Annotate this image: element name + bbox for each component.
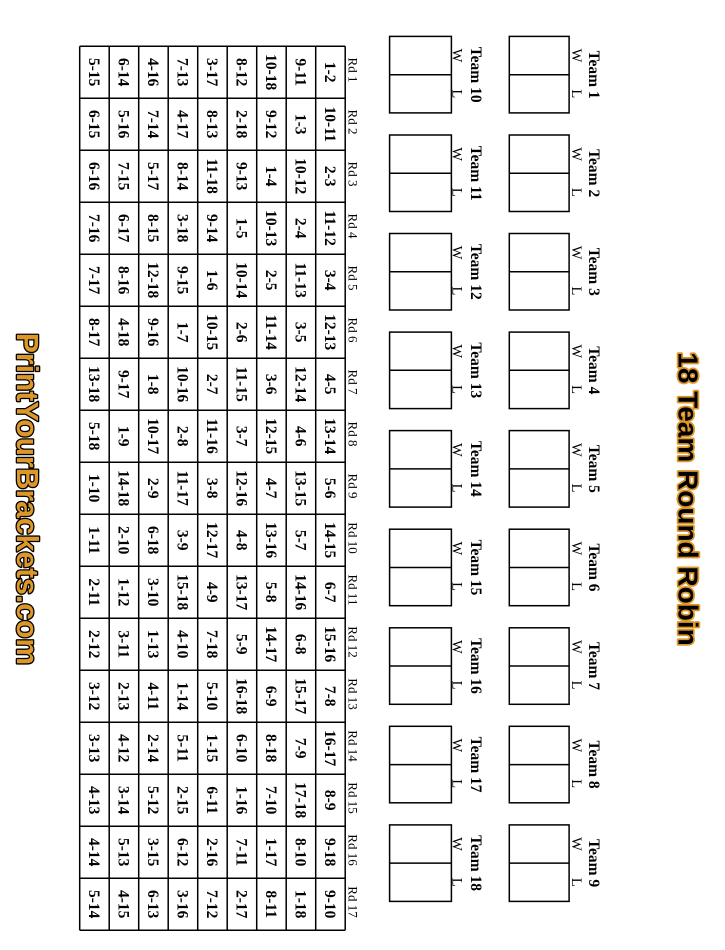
svg-text:6-15: 6-15 (85, 110, 102, 139)
svg-text:8-9: 8-9 (321, 790, 338, 811)
svg-text:9-16: 9-16 (144, 318, 161, 347)
svg-text:W: W (568, 246, 584, 260)
svg-text:Team 1: Team 1 (585, 51, 602, 99)
svg-text:Team 18: Team 18 (467, 835, 484, 891)
svg-text:L: L (568, 484, 584, 493)
svg-text:Rd 17: Rd 17 (346, 886, 361, 918)
svg-text:Team 10: Team 10 (467, 47, 484, 103)
svg-text:3-8: 3-8 (203, 478, 220, 499)
svg-text:W: W (568, 640, 584, 654)
svg-text:Rd 14: Rd 14 (346, 730, 361, 762)
svg-text:10-14: 10-14 (233, 262, 250, 298)
svg-text:9-11: 9-11 (292, 58, 309, 86)
svg-text:4-12: 4-12 (115, 734, 132, 763)
svg-text:Team 14: Team 14 (467, 441, 484, 497)
svg-text:L: L (568, 286, 584, 295)
svg-text:9-12: 9-12 (262, 110, 279, 139)
svg-text:2-11: 2-11 (85, 578, 102, 606)
svg-text:3-6: 3-6 (262, 374, 279, 395)
svg-text:16-17: 16-17 (321, 730, 338, 766)
svg-text:5-13: 5-13 (115, 838, 132, 867)
svg-text:1-14: 1-14 (174, 682, 191, 711)
svg-text:2-12: 2-12 (85, 630, 102, 659)
svg-text:2-15: 2-15 (174, 786, 191, 815)
svg-text:13-17: 13-17 (233, 574, 250, 610)
svg-text:12-18: 12-18 (144, 262, 161, 298)
svg-text:1-6: 1-6 (203, 270, 220, 291)
svg-text:12-13: 12-13 (321, 314, 338, 350)
svg-text:7-13: 7-13 (174, 58, 191, 87)
svg-text:14-16: 14-16 (292, 574, 309, 610)
svg-text:1-4: 1-4 (262, 166, 279, 187)
svg-text:Team 8: Team 8 (585, 741, 602, 789)
svg-text:1-3: 1-3 (292, 114, 309, 135)
svg-text:W: W (568, 49, 584, 63)
svg-text:3-14: 3-14 (115, 786, 132, 815)
svg-text:Rd 7: Rd 7 (346, 370, 361, 395)
svg-text:2-6: 2-6 (233, 322, 250, 343)
svg-text:7-10: 7-10 (262, 786, 279, 815)
svg-text:Rd 3: Rd 3 (346, 162, 361, 187)
svg-text:Rd 5: Rd 5 (346, 266, 361, 291)
svg-text:8-18: 8-18 (262, 734, 279, 763)
svg-text:Team 4: Team 4 (585, 346, 602, 394)
svg-text:11-12: 11-12 (321, 211, 338, 247)
svg-text:Team 7: Team 7 (585, 642, 602, 690)
svg-text:3-17: 3-17 (203, 58, 220, 87)
svg-text:1-16: 1-16 (233, 786, 250, 815)
svg-text:2-14: 2-14 (144, 734, 161, 763)
svg-text:5-7: 5-7 (292, 530, 309, 551)
svg-text:5-18: 5-18 (85, 422, 102, 451)
svg-text:1-2: 1-2 (321, 62, 338, 83)
svg-text:L: L (568, 385, 584, 394)
svg-text:5-10: 5-10 (203, 682, 220, 711)
svg-text:1-13: 1-13 (144, 630, 161, 659)
svg-text:8-10: 8-10 (292, 838, 309, 867)
svg-text:3-11: 3-11 (115, 630, 132, 658)
svg-text:9-15: 9-15 (174, 266, 191, 295)
svg-text:Team 6: Team 6 (585, 543, 602, 591)
svg-text:2-7: 2-7 (203, 374, 220, 395)
svg-text:11-18: 11-18 (203, 159, 220, 195)
svg-text:10-12: 10-12 (292, 158, 309, 194)
svg-text:7-18: 7-18 (203, 630, 220, 659)
svg-text:4-10: 4-10 (174, 630, 191, 659)
svg-text:10-17: 10-17 (144, 418, 161, 454)
svg-text:10-13: 10-13 (262, 210, 279, 246)
svg-text:11-15: 11-15 (233, 367, 250, 403)
svg-text:5-16: 5-16 (115, 110, 132, 139)
svg-text:W: W (568, 739, 584, 753)
svg-text:4-13: 4-13 (85, 786, 102, 815)
svg-text:3-13: 3-13 (85, 734, 102, 763)
svg-text:Rd 6: Rd 6 (346, 318, 361, 343)
svg-text:8-17: 8-17 (85, 318, 102, 347)
svg-text:5-8: 5-8 (262, 582, 279, 603)
svg-text:2-5: 2-5 (262, 270, 279, 291)
svg-text:L: L (568, 89, 584, 98)
svg-text:7-16: 7-16 (85, 214, 102, 243)
svg-text:4-9: 4-9 (203, 582, 220, 603)
svg-text:10-18: 10-18 (262, 54, 279, 90)
svg-text:W: W (568, 344, 584, 358)
svg-text:6-13: 6-13 (144, 890, 161, 919)
svg-text:12-14: 12-14 (292, 366, 309, 402)
svg-text:Rd 8: Rd 8 (346, 422, 361, 447)
svg-text:L: L (568, 681, 584, 690)
svg-text:1-18: 1-18 (292, 890, 309, 919)
svg-text:13-18: 13-18 (85, 366, 102, 402)
svg-text:1-9: 1-9 (115, 426, 132, 447)
svg-text:7-11: 7-11 (233, 838, 250, 866)
svg-text:W: W (568, 837, 584, 851)
svg-text:11-14: 11-14 (262, 315, 279, 351)
svg-text:8-16: 8-16 (115, 266, 132, 295)
svg-text:Team 16: Team 16 (467, 638, 484, 694)
svg-text:1-8: 1-8 (144, 374, 161, 395)
svg-text:4-6: 4-6 (292, 426, 309, 447)
svg-text:16-18: 16-18 (233, 678, 250, 714)
svg-text:11-16: 11-16 (203, 419, 220, 455)
svg-text:13-15: 13-15 (292, 470, 309, 506)
svg-text:12-17: 12-17 (203, 522, 220, 558)
svg-text:7-9: 7-9 (292, 738, 309, 759)
svg-text:Team 3: Team 3 (585, 248, 602, 296)
svg-text:3-4: 3-4 (321, 270, 338, 291)
svg-text:5-17: 5-17 (144, 162, 161, 191)
svg-text:9-14: 9-14 (203, 214, 220, 243)
svg-text:2-9: 2-9 (144, 478, 161, 499)
svg-text:Team 5: Team 5 (585, 445, 602, 493)
svg-text:7-17: 7-17 (85, 266, 102, 295)
svg-text:2-4: 2-4 (292, 218, 309, 239)
svg-text:4-5: 4-5 (321, 374, 338, 395)
svg-text:2-18: 2-18 (233, 110, 250, 139)
svg-text:7-12: 7-12 (203, 890, 220, 919)
svg-text:10-15: 10-15 (203, 314, 220, 350)
svg-text:Team 2: Team 2 (585, 149, 602, 197)
svg-text:Team 12: Team 12 (467, 244, 484, 300)
svg-text:Rd 16: Rd 16 (346, 834, 361, 866)
svg-text:L: L (568, 878, 584, 887)
svg-text:Team 17: Team 17 (467, 737, 484, 793)
svg-text:3-5: 3-5 (292, 322, 309, 343)
svg-text:2-8: 2-8 (174, 426, 191, 447)
svg-text:12-15: 12-15 (262, 418, 279, 454)
svg-text:2-3: 2-3 (321, 166, 338, 187)
svg-text:11-17: 11-17 (174, 471, 191, 507)
svg-text:5-14: 5-14 (85, 890, 102, 919)
svg-text:3-16: 3-16 (174, 890, 191, 919)
svg-text:Rd 12: Rd 12 (346, 626, 361, 657)
svg-text:Rd 4: Rd 4 (346, 214, 361, 239)
svg-text:7-8: 7-8 (321, 686, 338, 707)
svg-text:6-11: 6-11 (203, 786, 220, 814)
svg-text:4-11: 4-11 (144, 682, 161, 710)
svg-text:1-12: 1-12 (115, 578, 132, 607)
svg-text:Team 9: Team 9 (585, 839, 602, 887)
svg-text:14-17: 14-17 (262, 626, 279, 662)
svg-text:4-15: 4-15 (115, 890, 132, 919)
svg-text:8-11: 8-11 (262, 890, 279, 918)
svg-text:6-10: 6-10 (233, 734, 250, 763)
svg-text:PrintYourBrackets.com: PrintYourBrackets.com (10, 333, 43, 665)
svg-text:2-13: 2-13 (115, 682, 132, 711)
svg-text:1-15: 1-15 (203, 734, 220, 763)
svg-text:10-16: 10-16 (174, 366, 191, 402)
svg-text:2-17: 2-17 (233, 890, 250, 919)
svg-text:1-17: 1-17 (262, 838, 279, 867)
svg-text:6-8: 6-8 (292, 634, 309, 655)
svg-text:4-14: 4-14 (85, 838, 102, 867)
svg-text:3-12: 3-12 (85, 682, 102, 711)
svg-text:13-16: 13-16 (262, 522, 279, 558)
svg-text:15-18: 15-18 (174, 574, 191, 610)
svg-text:15-16: 15-16 (321, 626, 338, 662)
svg-text:L: L (568, 582, 584, 591)
svg-text:L: L (568, 188, 584, 197)
svg-text:6-7: 6-7 (321, 582, 338, 603)
svg-text:5-11: 5-11 (174, 734, 191, 762)
svg-text:5-12: 5-12 (144, 786, 161, 815)
svg-text:6-9: 6-9 (262, 686, 279, 707)
svg-text:10-11: 10-11 (321, 107, 338, 142)
svg-text:11-13: 11-13 (292, 263, 309, 299)
svg-text:5-9: 5-9 (233, 634, 250, 655)
svg-text:14-18: 14-18 (115, 470, 132, 506)
svg-text:9-18: 9-18 (321, 838, 338, 867)
svg-text:1-5: 1-5 (233, 218, 250, 239)
svg-text:9-10: 9-10 (321, 890, 338, 919)
svg-text:6-12: 6-12 (174, 838, 191, 867)
svg-text:5-6: 5-6 (321, 478, 338, 499)
svg-text:15-17: 15-17 (292, 678, 309, 714)
svg-text:Rd 1: Rd 1 (346, 58, 361, 83)
svg-text:1-10: 1-10 (85, 474, 102, 503)
svg-text:Rd 10: Rd 10 (346, 522, 361, 553)
svg-text:8-14: 8-14 (174, 162, 191, 191)
svg-text:9-13: 9-13 (233, 162, 250, 191)
svg-text:L: L (568, 779, 584, 788)
svg-text:3-18: 3-18 (174, 214, 191, 243)
svg-text:13-14: 13-14 (321, 418, 338, 454)
svg-text:4-18: 4-18 (115, 318, 132, 347)
svg-text:1-7: 1-7 (174, 322, 191, 343)
svg-text:Rd 9: Rd 9 (346, 474, 361, 499)
svg-text:6-17: 6-17 (115, 214, 132, 243)
svg-text:6-16: 6-16 (85, 162, 102, 191)
svg-text:3-15: 3-15 (144, 838, 161, 867)
svg-text:12-16: 12-16 (233, 470, 250, 506)
svg-text:8-12: 8-12 (233, 58, 250, 87)
svg-text:7-15: 7-15 (115, 162, 132, 191)
svg-text:Rd 13: Rd 13 (346, 678, 361, 709)
svg-text:5-15: 5-15 (85, 58, 102, 87)
svg-text:17-18: 17-18 (292, 782, 309, 818)
svg-text:Rd 15: Rd 15 (346, 782, 361, 813)
svg-text:Team 15: Team 15 (467, 540, 484, 596)
svg-text:7-14: 7-14 (144, 110, 161, 139)
svg-text:8-13: 8-13 (203, 110, 220, 139)
svg-text:W: W (568, 147, 584, 161)
svg-text:4-7: 4-7 (262, 478, 279, 499)
svg-text:4-16: 4-16 (144, 58, 161, 87)
svg-text:18 Team Round Robin: 18 Team Round Robin (673, 352, 704, 646)
svg-text:W: W (568, 541, 584, 555)
svg-text:3-9: 3-9 (174, 530, 191, 551)
svg-text:6-14: 6-14 (115, 58, 132, 87)
svg-text:Team 11: Team 11 (467, 146, 484, 201)
svg-text:Rd 2: Rd 2 (346, 110, 361, 135)
svg-text:9-17: 9-17 (115, 370, 132, 399)
svg-text:Rd 11: Rd 11 (346, 575, 361, 606)
svg-text:4-8: 4-8 (233, 530, 250, 551)
svg-text:2-16: 2-16 (203, 838, 220, 867)
svg-text:W: W (568, 443, 584, 457)
svg-text:2-10: 2-10 (115, 526, 132, 555)
svg-text:3-10: 3-10 (144, 578, 161, 607)
svg-text:14-15: 14-15 (321, 522, 338, 558)
svg-text:1-11: 1-11 (85, 526, 102, 554)
svg-text:6-18: 6-18 (144, 526, 161, 555)
svg-text:Team 13: Team 13 (467, 342, 484, 398)
svg-text:3-7: 3-7 (233, 426, 250, 447)
svg-text:4-17: 4-17 (174, 110, 191, 139)
svg-text:8-15: 8-15 (144, 214, 161, 243)
